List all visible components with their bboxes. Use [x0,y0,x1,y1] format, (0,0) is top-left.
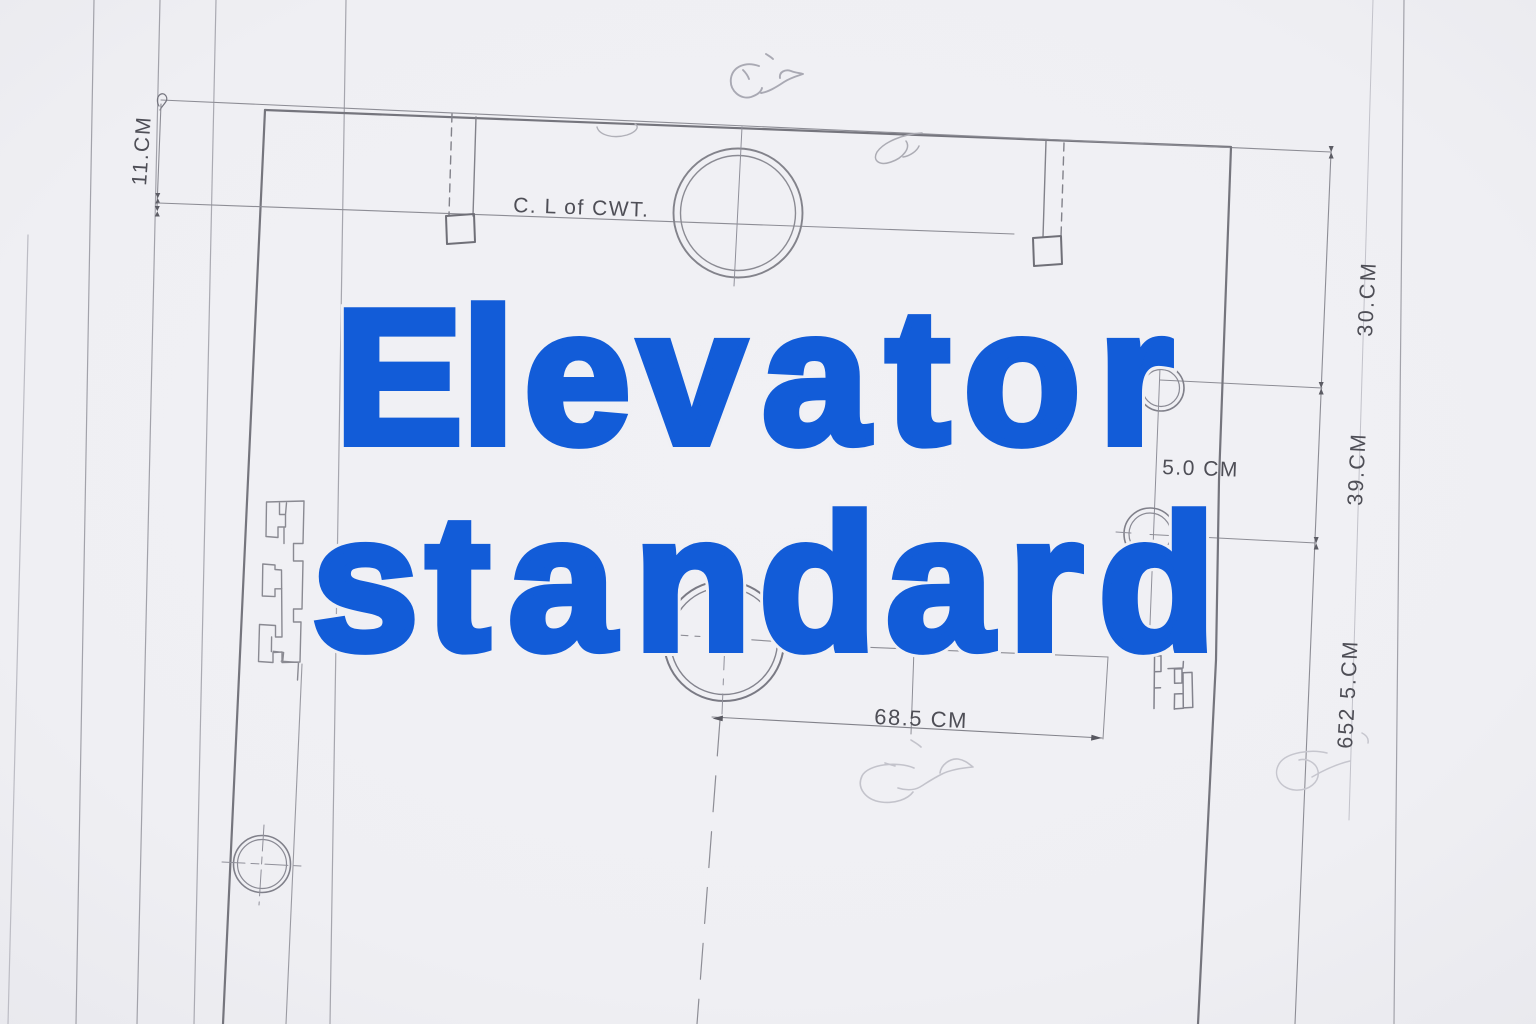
svg-text:standard: standard [312,476,1230,690]
svg-text:C. L of CWT.: C. L of CWT. [513,194,650,222]
svg-text:30.CM: 30.CM [1353,260,1381,337]
svg-text:68.5 CM: 68.5 CM [874,704,969,733]
svg-text:11.CM: 11.CM [128,115,156,187]
svg-text:39.CM: 39.CM [1343,432,1371,506]
